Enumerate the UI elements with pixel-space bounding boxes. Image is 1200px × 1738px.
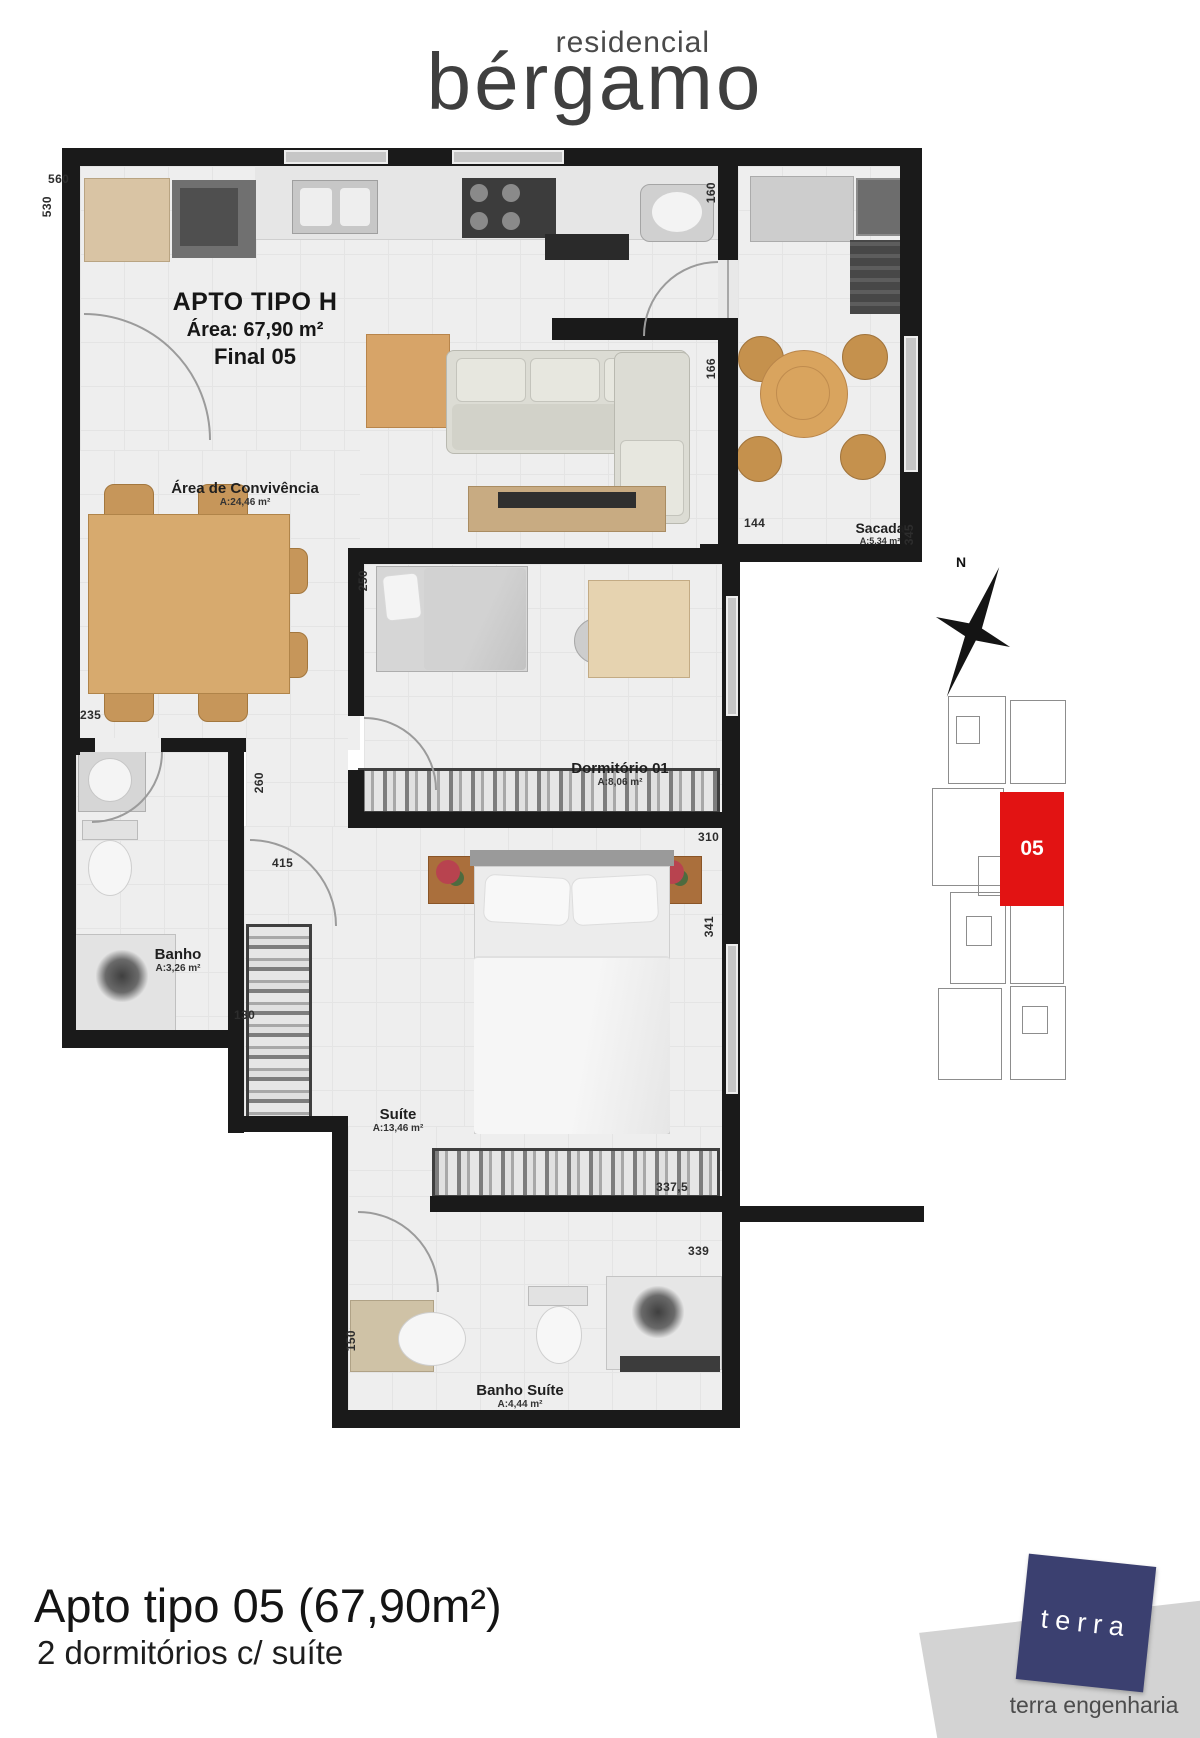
dim-label: 166 [704, 358, 718, 379]
room-label-sacada: Sacada A:5,34 m² [828, 520, 932, 546]
dim-label: 235 [80, 708, 101, 722]
terra-logo: terra [1016, 1554, 1156, 1693]
room-label-suite: Suíte A:13,46 m² [348, 1106, 448, 1135]
keyplan-unit-outline [1010, 700, 1066, 784]
room-area: A:4,44 m² [448, 1399, 592, 1411]
room-name: Banho Suíte [448, 1382, 592, 1399]
dim-label: 415 [272, 856, 293, 870]
flyer-page: residencial bérgamo [0, 0, 1200, 1738]
room-name: Dormitório 01 [540, 760, 700, 777]
room-name: Área de Convivência [145, 480, 345, 497]
room-name: Banho [130, 946, 226, 963]
keyplan-unit-05-highlight: 05 [1000, 792, 1064, 906]
room-area: A:8,06 m² [540, 777, 700, 789]
dim-label: 250 [356, 570, 370, 591]
dim-label: 341 [702, 916, 716, 937]
dim-label: 160 [704, 182, 718, 203]
keyplan-unit-outline [1022, 1006, 1048, 1034]
room-area: A:13,46 m² [348, 1123, 448, 1135]
dim-label: 530 [40, 196, 54, 217]
room-label-dormitorio: Dormitório 01 A:8,06 m² [540, 760, 700, 789]
unit-type: APTO TIPO H [140, 288, 370, 317]
compass-icon [930, 562, 1016, 702]
room-label-banho-suite: Banho Suíte A:4,44 m² [448, 1382, 592, 1411]
dim-label: 345 [902, 524, 916, 545]
room-label-banho: Banho A:3,26 m² [130, 946, 226, 975]
dim-label: 130 [234, 1008, 255, 1022]
room-area: A:5,34 m² [828, 536, 932, 546]
dim-label: 339 [688, 1244, 709, 1258]
room-name: Sacada [828, 520, 932, 536]
dim-label: 144 [744, 516, 765, 530]
dim-label: 260 [252, 772, 266, 793]
dim-label: 337,5 [656, 1180, 688, 1194]
unit-final: Final 05 [140, 344, 370, 370]
brand-name: terra engenharia [988, 1692, 1200, 1719]
room-label-convivencia: Área de Convivência A:24,46 m² [145, 480, 345, 509]
unit-area: Área: 67,90 m² [140, 319, 370, 342]
dim-label: 560 [48, 172, 69, 186]
room-name: Suíte [348, 1106, 448, 1123]
keyplan-unit-outline [966, 916, 992, 946]
footer-title: Apto tipo 05 (67,90m²) [34, 1578, 502, 1633]
room-area: A:24,46 m² [145, 497, 345, 509]
building-keyplan: 05 [926, 696, 1078, 1088]
footer-subtitle: 2 dormitórios c/ suíte [37, 1634, 343, 1672]
dim-label: 150 [344, 1330, 358, 1351]
keyplan-unit-outline [956, 716, 980, 744]
unit-title-block: APTO TIPO H Área: 67,90 m² Final 05 [140, 288, 370, 370]
keyplan-unit-outline [938, 988, 1002, 1080]
dim-label: 310 [698, 830, 719, 844]
room-area: A:3,26 m² [130, 963, 226, 975]
